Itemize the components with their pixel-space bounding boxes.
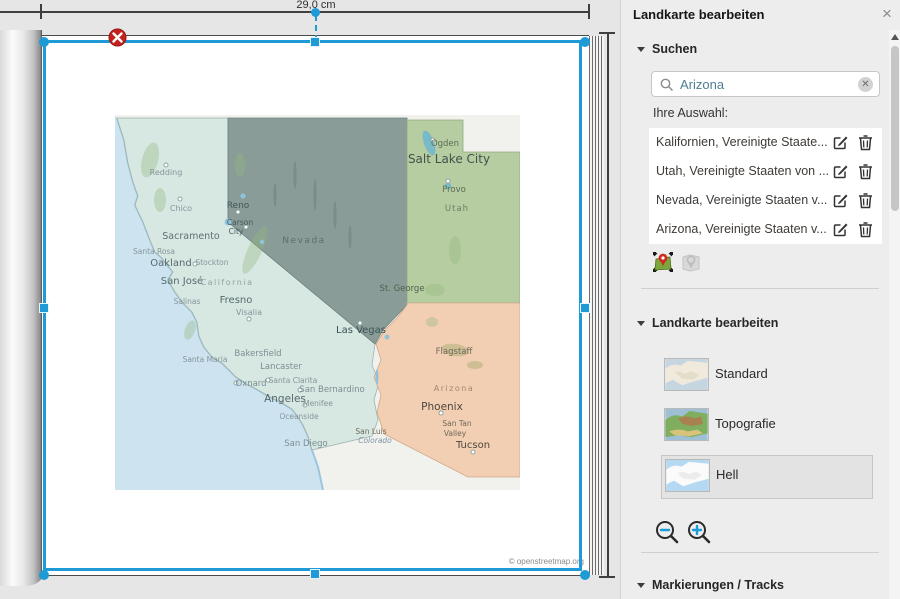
measure-tick bbox=[588, 4, 590, 19]
trash-icon[interactable] bbox=[858, 192, 875, 209]
search-icon bbox=[660, 78, 674, 92]
width-measure-line bbox=[0, 11, 590, 13]
height-measure-line bbox=[607, 32, 609, 578]
search-box: ✕ bbox=[651, 71, 880, 97]
edit-icon[interactable] bbox=[832, 134, 849, 151]
resize-handle-bottom-center[interactable] bbox=[310, 569, 320, 579]
zoom-in-button[interactable] bbox=[686, 519, 712, 545]
style-thumbnail-hell bbox=[665, 459, 710, 492]
map-style-option-topografie[interactable]: Topografie bbox=[664, 408, 874, 443]
resize-handle-middle-right[interactable] bbox=[580, 303, 590, 313]
selection-item-label: Utah, Vereinigte Staaten von ... bbox=[656, 164, 829, 178]
measure-tick bbox=[599, 32, 615, 34]
close-icon[interactable]: × bbox=[877, 4, 897, 24]
map-edit-panel: Landkarte bearbeiten × Suchen ✕ Ihre Aus… bbox=[620, 0, 900, 599]
measure-tick bbox=[40, 4, 42, 19]
resize-handle-top-left[interactable] bbox=[39, 37, 49, 47]
selection-item-label: Kalifornien, Vereinigte Staate... bbox=[656, 135, 828, 149]
selection-list-label: Ihre Auswahl: bbox=[653, 106, 728, 120]
divider bbox=[641, 288, 879, 289]
trash-icon[interactable] bbox=[858, 163, 875, 180]
selection-item[interactable]: Kalifornien, Vereinigte Staate... bbox=[649, 128, 882, 157]
search-input[interactable] bbox=[680, 74, 850, 94]
map-style-option-standard[interactable]: Standard bbox=[664, 358, 874, 393]
selection-item-label: Nevada, Vereinigte Staaten v... bbox=[656, 193, 827, 207]
style-thumbnail-standard bbox=[664, 358, 709, 391]
measure-tick bbox=[599, 576, 615, 578]
resize-handle-top-right[interactable] bbox=[580, 37, 590, 47]
style-label-topografie: Topografie bbox=[715, 416, 776, 431]
resize-handle-bottom-right[interactable] bbox=[580, 570, 590, 580]
section-header-search[interactable]: Suchen bbox=[652, 42, 697, 56]
style-label-hell: Hell bbox=[716, 467, 738, 482]
resize-handle-bottom-left[interactable] bbox=[39, 570, 49, 580]
selection-item-label: Arizona, Vereinigte Staaten v... bbox=[656, 222, 827, 236]
collapse-triangle-icon[interactable] bbox=[637, 47, 645, 52]
trash-icon[interactable] bbox=[858, 221, 875, 238]
resize-handle-middle-left[interactable] bbox=[39, 303, 49, 313]
scrollbar-up-arrow-icon[interactable] bbox=[891, 34, 899, 40]
style-label-standard: Standard bbox=[715, 366, 768, 381]
editing-canvas: 29,0 cm bbox=[0, 0, 620, 599]
page-stack-edge bbox=[589, 36, 604, 575]
section-header-map-style[interactable]: Landkarte bearbeiten bbox=[652, 316, 778, 330]
marker-tool-disabled-button bbox=[679, 250, 703, 274]
selection-item[interactable]: Nevada, Vereinigte Staaten v... bbox=[649, 186, 882, 215]
collapse-triangle-icon[interactable] bbox=[637, 321, 645, 326]
section-header-markers[interactable]: Markierungen / Tracks bbox=[652, 578, 784, 592]
edit-icon[interactable] bbox=[832, 221, 849, 238]
edit-icon[interactable] bbox=[832, 192, 849, 209]
collapse-triangle-icon[interactable] bbox=[637, 583, 645, 588]
selection-frame[interactable] bbox=[43, 40, 582, 571]
map-style-option-hell[interactable]: Hell bbox=[665, 459, 873, 494]
add-map-marker-button[interactable] bbox=[651, 250, 675, 274]
selection-list: Kalifornien, Vereinigte Staate... Utah, … bbox=[649, 128, 882, 244]
edit-icon[interactable] bbox=[832, 163, 849, 180]
style-thumbnail-topografie bbox=[664, 408, 709, 441]
zoom-out-button[interactable] bbox=[654, 519, 680, 545]
scrollbar-thumb[interactable] bbox=[891, 46, 899, 211]
panel-title: Landkarte bearbeiten bbox=[633, 7, 765, 22]
divider bbox=[641, 552, 879, 553]
resize-handle-top-center[interactable] bbox=[310, 37, 320, 47]
trash-icon[interactable] bbox=[858, 134, 875, 151]
clear-search-icon[interactable]: ✕ bbox=[858, 77, 873, 92]
selection-item[interactable]: Utah, Vereinigte Staaten von ... bbox=[649, 157, 882, 186]
page-spine-curl bbox=[0, 30, 42, 586]
selection-item[interactable]: Arizona, Vereinigte Staaten v... bbox=[649, 215, 882, 244]
delete-selection-button[interactable] bbox=[108, 28, 127, 47]
